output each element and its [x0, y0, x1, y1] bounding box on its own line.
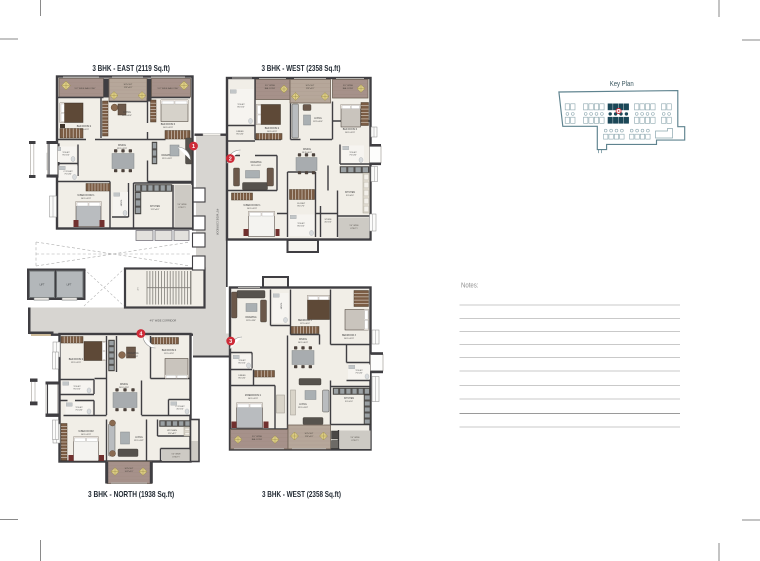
- svg-text:5'0" WIDE BALCONY: 5'0" WIDE BALCONY: [157, 87, 179, 90]
- svg-text:3 BHK - NORTH (1938 Sq.ft): 3 BHK - NORTH (1938 Sq.ft): [88, 489, 174, 499]
- svg-text:14'0"x12'0": 14'0"x12'0": [81, 434, 92, 436]
- svg-text:11'8"x20'4": 11'8"x20'4": [122, 115, 132, 117]
- svg-text:Notes:: Notes:: [461, 282, 479, 289]
- svg-text:3: 3: [229, 339, 232, 345]
- svg-text:5'0" WIDE BALCONY: 5'0" WIDE BALCONY: [74, 87, 96, 90]
- svg-text:8'0"x5'0": 8'0"x5'0": [237, 107, 245, 109]
- svg-text:BED ROOM 2: BED ROOM 2: [69, 359, 84, 361]
- svg-text:KITCHEN: KITCHEN: [344, 398, 354, 400]
- svg-text:8'0"x7'0": 8'0"x7'0": [297, 206, 305, 208]
- svg-text:BALCONY: BALCONY: [265, 87, 276, 90]
- svg-text:5'0" WIDE: 5'0" WIDE: [265, 85, 275, 87]
- svg-text:9'0"x5'0": 9'0"x5'0": [62, 155, 70, 157]
- svg-text:12'0"x20'0": 12'0"x20'0": [128, 356, 139, 358]
- svg-text:8'0"x4'0": 8'0"x4'0": [238, 378, 246, 380]
- svg-text:5'0" WIDE: 5'0" WIDE: [343, 85, 353, 87]
- svg-text:11'8"x5'0": 11'8"x5'0": [306, 88, 315, 90]
- svg-text:2: 2: [229, 157, 232, 163]
- svg-text:11'8"x20'4": 11'8"x20'4": [313, 121, 323, 123]
- svg-text:LIVING: LIVING: [123, 112, 131, 114]
- svg-text:KITCHEN: KITCHEN: [150, 206, 160, 208]
- svg-text:BEDROOM 3: BEDROOM 3: [342, 335, 357, 337]
- svg-text:M.BED ROOM 1: M.BED ROOM 1: [78, 195, 96, 197]
- svg-text:5'0" WIDE: 5'0" WIDE: [177, 204, 187, 206]
- svg-text:TOILET: TOILET: [120, 200, 122, 208]
- svg-text:10'8"x5'0": 10'8"x5'0": [125, 471, 134, 473]
- svg-text:BED ROOM 3: BED ROOM 3: [343, 129, 358, 131]
- svg-text:11'0"x8'2": 11'0"x8'2": [168, 433, 177, 435]
- svg-text:12'0"x13'4": 12'0"x13'4": [298, 407, 309, 409]
- svg-text:5'0" WIDE: 5'0" WIDE: [252, 436, 262, 438]
- svg-text:BALCONY: BALCONY: [343, 87, 354, 90]
- svg-text:14'0"x10'0": 14'0"x10'0": [298, 342, 309, 344]
- svg-text:M.BED ROOM: M.BED ROOM: [78, 431, 93, 433]
- svg-text:3 BHK - WEST (2358 Sq.ft): 3 BHK - WEST (2358 Sq.ft): [262, 63, 341, 73]
- svg-text:4'6" WIDE CORRIDOR: 4'6" WIDE CORRIDOR: [216, 209, 220, 236]
- svg-text:SIT-OUT: SIT-OUT: [124, 84, 133, 86]
- svg-text:11'8"x5'0": 11'8"x5'0": [305, 436, 314, 438]
- svg-text:1: 1: [192, 144, 195, 150]
- svg-text:12'0"x12'0": 12'0"x12'0": [71, 362, 82, 364]
- svg-text:7'0"x4'0": 7'0"x4'0": [64, 174, 72, 176]
- svg-text:UTILITY: UTILITY: [350, 228, 358, 230]
- svg-text:UTILITY: UTILITY: [178, 207, 186, 209]
- svg-text:LIFT: LIFT: [67, 284, 72, 286]
- svg-text:BED ROOM 2: BED ROOM 2: [265, 128, 280, 130]
- svg-text:LIVING: LIVING: [314, 118, 322, 120]
- svg-text:12'0"x13'0": 12'0"x13'0": [162, 158, 173, 160]
- svg-text:KITCHEN: KITCHEN: [345, 192, 355, 194]
- svg-text:5'0" WIDE: 5'0" WIDE: [350, 437, 360, 439]
- svg-text:KITCHEN: KITCHEN: [167, 430, 177, 432]
- svg-text:8'0"x5'0": 8'0"x5'0": [297, 226, 305, 228]
- svg-text:10'0"x12'0": 10'0"x12'0": [344, 338, 355, 340]
- svg-text:14'0"x12'0": 14'0"x12'0": [81, 198, 92, 200]
- svg-text:DINING: DINING: [303, 149, 311, 151]
- svg-text:DRAWING: DRAWING: [127, 352, 138, 355]
- svg-text:7'6"x4'0": 7'6"x4'0": [349, 155, 357, 157]
- svg-text:3 BHK - WEST (2358 Sq.ft): 3 BHK - WEST (2358 Sq.ft): [262, 489, 341, 499]
- svg-text:DINING: DINING: [120, 384, 128, 386]
- svg-text:9'0"x8'0": 9'0"x8'0": [346, 195, 354, 197]
- svg-text:BED ROOM 3: BED ROOM 3: [161, 124, 176, 126]
- svg-text:8'0"x4'0": 8'0"x4'0": [236, 134, 244, 136]
- svg-text:SIT-OUT: SIT-OUT: [125, 468, 134, 470]
- svg-text:11'9"x9'0": 11'9"x9'0": [151, 209, 160, 211]
- svg-text:12'0"x13'1": 12'0"x13'1": [134, 440, 145, 442]
- svg-text:5'0" WIDE: 5'0" WIDE: [349, 225, 359, 227]
- svg-text:9'0"x9'0": 9'0"x9'0": [345, 401, 353, 403]
- svg-text:M.BED ROOM 1: M.BED ROOM 1: [244, 205, 262, 207]
- svg-text:LIFT: LIFT: [40, 284, 45, 286]
- svg-text:10'0"x12'0": 10'0"x12'0": [345, 132, 356, 134]
- svg-text:4'0"x5'0": 4'0"x5'0": [176, 409, 184, 411]
- svg-text:BALCONY: BALCONY: [252, 438, 263, 441]
- svg-text:11'0"x12'0": 11'0"x12'0": [164, 353, 174, 355]
- svg-text:11'8"x5'0": 11'8"x5'0": [124, 87, 133, 89]
- svg-text:Key Plan: Key Plan: [610, 79, 634, 88]
- svg-text:8'0"x5'0": 8'0"x5'0": [238, 363, 246, 365]
- svg-text:7'0"x4'0": 7'0"x4'0": [75, 410, 83, 412]
- svg-text:10'0"x12'0": 10'0"x12'0": [163, 127, 174, 129]
- svg-text:BED ROOM 3: BED ROOM 3: [162, 350, 177, 352]
- svg-text:DRAWING: DRAWING: [245, 316, 256, 319]
- svg-text:12'0"x12'0": 12'0"x12'0": [79, 129, 90, 131]
- svg-text:M.BEDROOM 1: M.BEDROOM 1: [245, 395, 262, 397]
- svg-text:4'6" WIDE CORRIDOR: 4'6" WIDE CORRIDOR: [150, 319, 177, 323]
- svg-text:11'8"x13'4": 11'8"x13'4": [246, 320, 256, 322]
- svg-text:5'0" WIDE: 5'0" WIDE: [171, 454, 181, 456]
- svg-text:BEDROOM 2: BEDROOM 2: [298, 320, 313, 322]
- svg-text:14'0"x12'0": 14'0"x12'0": [248, 398, 259, 400]
- svg-text:4'0"x5'0": 4'0"x5'0": [324, 222, 332, 224]
- svg-text:UP: UP: [136, 287, 138, 291]
- svg-text:LIVING: LIVING: [299, 404, 307, 406]
- svg-text:10'0"x12'0": 10'0"x12'0": [267, 131, 278, 133]
- svg-text:TOILET: TOILET: [280, 303, 282, 311]
- svg-text:14'0"x12'0": 14'0"x12'0": [247, 208, 258, 210]
- svg-text:BED ROOM 2: BED ROOM 2: [77, 126, 92, 128]
- svg-text:UTILITY: UTILITY: [351, 440, 359, 442]
- svg-text:SIT-OUT: SIT-OUT: [305, 433, 314, 435]
- svg-text:7'6"x4'0": 7'6"x4'0": [355, 373, 363, 375]
- svg-text:SIT-OUT: SIT-OUT: [306, 85, 315, 87]
- svg-text:9'0"x5'0": 9'0"x5'0": [73, 389, 81, 391]
- svg-text:LIVING: LIVING: [135, 437, 143, 439]
- svg-text:DINING: DINING: [299, 339, 307, 341]
- svg-text:3 BHK - EAST (2119 Sq.ft): 3 BHK - EAST (2119 Sq.ft): [92, 63, 170, 73]
- svg-text:UTILITY: UTILITY: [172, 457, 180, 459]
- svg-text:DRAWING: DRAWING: [250, 161, 261, 164]
- svg-text:11'9"x10'0": 11'9"x10'0": [300, 323, 310, 325]
- svg-text:13'0"x13'0": 13'0"x13'0": [251, 165, 262, 167]
- svg-text:DINING: DINING: [118, 145, 126, 147]
